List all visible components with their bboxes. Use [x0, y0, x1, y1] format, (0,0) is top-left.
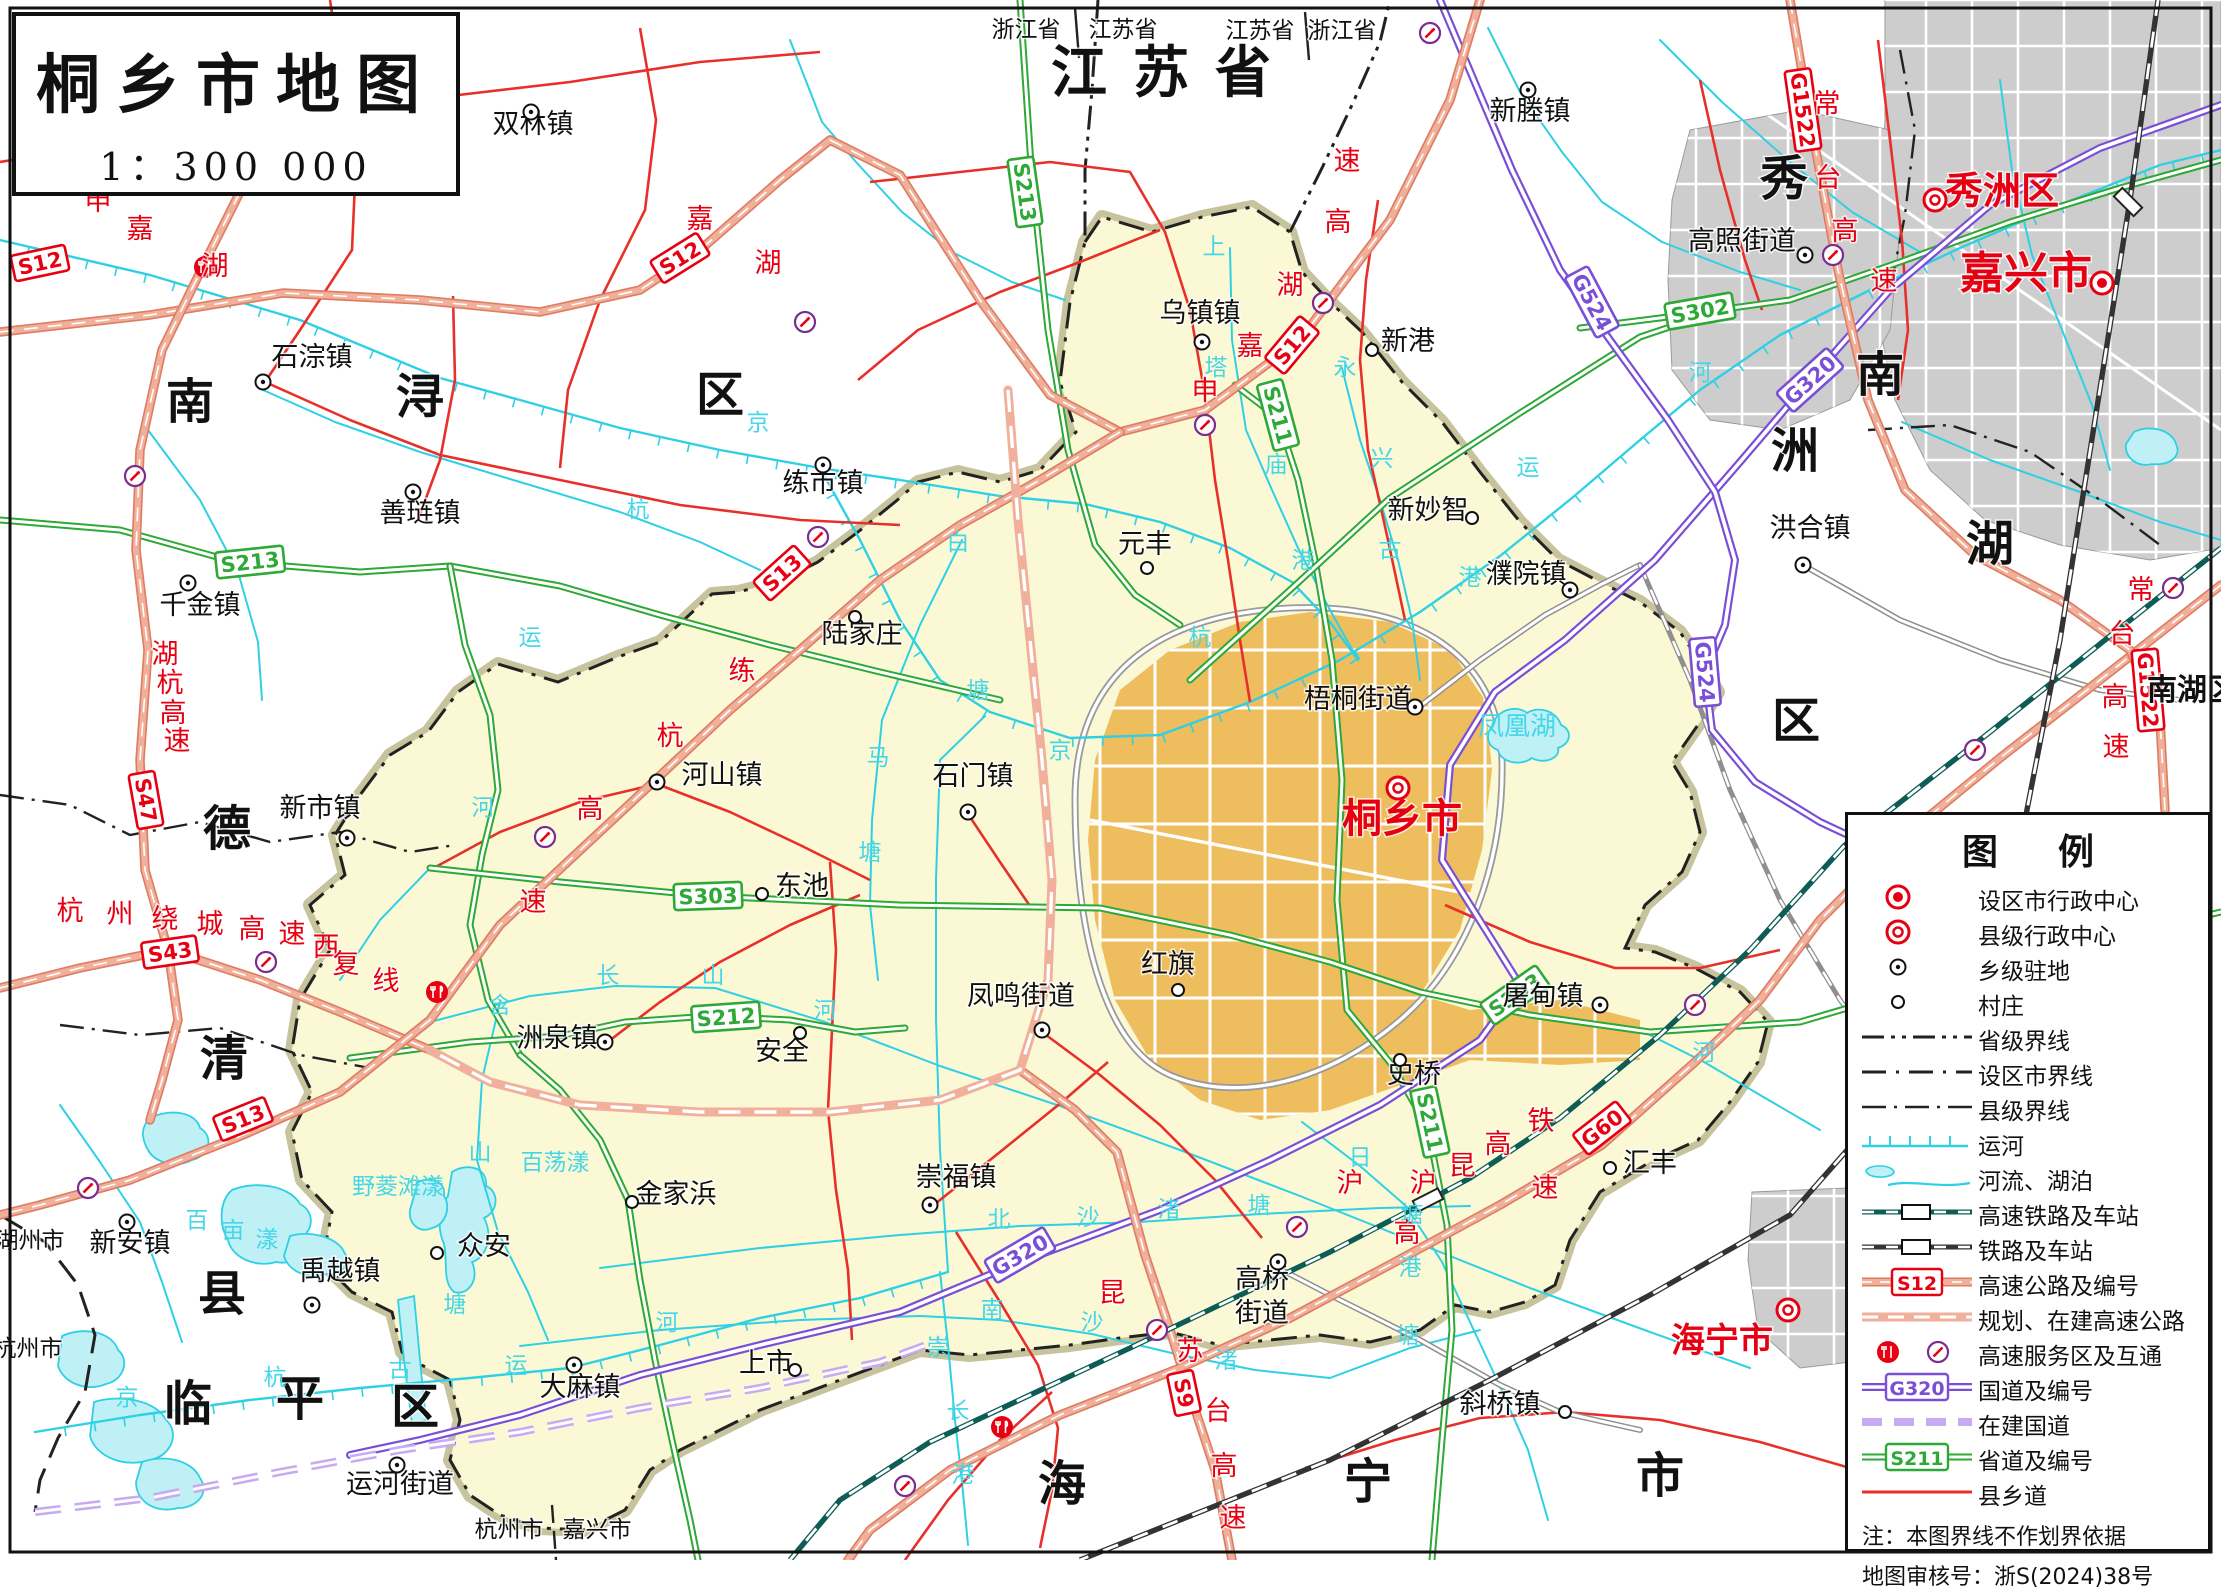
town-label: 洲泉镇 [517, 1023, 598, 1054]
road-label: 速 [1220, 1503, 1247, 1534]
water-label: 河 [814, 998, 837, 1024]
water-label: 白 [947, 530, 970, 556]
township-dot [1798, 248, 1813, 263]
dist-label: 区 [391, 1379, 439, 1435]
legend-label: 规划、在建高速公路 [1978, 1302, 2185, 1336]
water-label: 河 [472, 795, 495, 821]
road-label: 杭 [157, 668, 184, 699]
legend-item-county-road: 县乡道 [1848, 1476, 2208, 1511]
red-label: 秀洲区 [1944, 169, 2059, 213]
legend-item-canal: 运河 [1848, 1126, 2208, 1161]
road-label: 沪 [1410, 1168, 1437, 1199]
road-label: 高 [1485, 1129, 1512, 1160]
interchange-icon [1147, 1320, 1167, 1340]
bound-label: 嘉兴市 [563, 1517, 632, 1543]
legend-symbol-canal [1858, 1126, 1978, 1162]
dist-label: 江苏省 [1051, 40, 1297, 106]
town-label: 运河街道 [346, 1469, 454, 1500]
township-dot [406, 485, 421, 500]
water-label: 百荡漾 [521, 1150, 590, 1176]
township-dot [524, 105, 539, 120]
water-label: 杭 [627, 497, 650, 523]
village-dot [789, 1364, 801, 1376]
water-label: 古 [389, 1357, 412, 1383]
interchange-icon [795, 312, 815, 332]
road-label: 速 [1532, 1173, 1559, 1204]
legend-item-rail: 铁路及车站 [1848, 1231, 2208, 1266]
water-label: 野菱滩漾 [352, 1174, 444, 1200]
water-label: 港 [1292, 548, 1315, 574]
legend-label: 国道及编号 [1978, 1372, 2093, 1406]
road-label: 州 [107, 899, 134, 930]
legend-symbol-township [1858, 951, 1978, 987]
interchange-icon [1313, 293, 1333, 313]
road-label: 速 [164, 726, 191, 757]
dist-label: 区 [696, 367, 744, 423]
town-label: 梧桐街道 [1304, 684, 1412, 715]
water-label: 马 [867, 745, 890, 771]
legend-item-provincial: S211省道及编号 [1848, 1441, 2208, 1476]
township-dot [1521, 83, 1536, 98]
service-area-icon [426, 981, 448, 1003]
town-label: 新塍镇 [1490, 96, 1571, 127]
water-label: 日 [1349, 1145, 1372, 1171]
village-dot [1366, 344, 1378, 356]
legend-symbol-hsr [1858, 1196, 1978, 1232]
svg-text:S303: S303 [678, 883, 738, 909]
county-admin-dot [1387, 777, 1409, 799]
legend-item-township: 乡级驻地 [1848, 951, 2208, 986]
road-label: 沪 [1337, 1168, 1364, 1199]
town-label: 陆家庄 [822, 619, 903, 650]
water-label: 塔 [1205, 355, 1228, 381]
town-label: 汇丰 [1623, 1148, 1677, 1179]
interchange-icon [125, 466, 145, 486]
township-dot [120, 1215, 135, 1230]
water-label: 港 [952, 1462, 975, 1488]
legend-title: 图例 [1908, 823, 2208, 875]
svg-text:G320: G320 [1889, 1378, 1944, 1400]
road-badge-s212: S212 [691, 1002, 761, 1033]
water-label: 河 [1693, 1040, 1716, 1066]
county-admin-dot [1924, 189, 1946, 211]
township-dot [961, 805, 976, 820]
legend-item-national-planned: 在建国道 [1848, 1406, 2208, 1441]
legend-symbol-national: G320 [1858, 1371, 1978, 1407]
road-label: 速 [1334, 146, 1361, 177]
water-label: 漾 [256, 1227, 279, 1253]
water-label: 港 [1399, 1255, 1422, 1281]
legend-label: 高速公路及编号 [1978, 1267, 2139, 1301]
road-label: 线 [373, 966, 400, 997]
legend-note-2: 地图审核号：浙S(2024)38号 [1862, 1559, 2208, 1591]
road-label: 湖 [755, 248, 782, 279]
town-label: 乌镇镇 [1160, 298, 1241, 329]
town-label: 新港 [1381, 326, 1435, 357]
legend-label: 乡级驻地 [1978, 952, 2070, 986]
water-label: 长 [597, 963, 620, 989]
water-label: 亩 [222, 1218, 245, 1244]
interchange-icon [1287, 1217, 1307, 1237]
township-dot [567, 1358, 582, 1373]
water-label: 凤凰湖 [1478, 712, 1556, 742]
water-label: 百 [186, 1208, 209, 1234]
dist-label: 县 [198, 1266, 246, 1322]
water-label: 长 [947, 1398, 970, 1424]
road-label: 高 [577, 794, 604, 825]
red-label: 海宁市 [1671, 1321, 1773, 1361]
road-label: 湖 [202, 251, 229, 282]
water-label: 庙 [1265, 452, 1288, 478]
township-dot [1035, 1023, 1050, 1038]
town-label: 上市 [739, 1348, 793, 1379]
legend-label: 河流、湖泊 [1978, 1162, 2093, 1196]
town-label: 红旗 [1141, 949, 1195, 980]
village-dot [1141, 562, 1153, 574]
legend-symbol-expwy-planned [1858, 1301, 1978, 1337]
legend-item-county-boundary: 县级界线 [1848, 1091, 2208, 1126]
road-label: 苏 [1177, 1336, 1204, 1367]
road-label: 速 [2103, 732, 2130, 763]
water-label: 永 [1334, 355, 1357, 381]
interchange-icon [1195, 415, 1215, 435]
interchange-icon [535, 827, 555, 847]
village-dot [1172, 984, 1184, 996]
road-label: 速 [1871, 266, 1898, 297]
town-label: 安全 [755, 1036, 809, 1067]
village-dot [1394, 1054, 1406, 1066]
water-label: 渚 [1215, 1348, 1238, 1374]
dist-label: 德 [203, 801, 251, 857]
township-dot [340, 831, 355, 846]
interchange-icon [1823, 245, 1843, 265]
water-label: 运 [1517, 455, 1540, 481]
road-label: 湖 [152, 639, 179, 670]
legend-label: 运河 [1978, 1127, 2024, 1161]
road-label: 高 [1325, 207, 1352, 238]
road-badge-s303: S303 [674, 882, 743, 910]
legend: 图例 设区市行政中心县级行政中心乡级驻地村庄省级界线设区市界线县级界线运河河流、… [1845, 812, 2211, 1552]
township-dot [305, 1298, 320, 1313]
water-label: 杭 [1189, 625, 1212, 651]
legend-symbol-river-lake [1858, 1161, 1978, 1197]
road-label: 湖 [1277, 270, 1304, 301]
water-label: 塘 [1397, 1323, 1420, 1349]
legend-label: 铁路及车站 [1978, 1232, 2093, 1266]
road-badge-s213: S213 [215, 546, 285, 579]
legend-symbol-prov-boundary [1858, 1021, 1978, 1057]
road-badge-g524: G524 [1689, 637, 1721, 707]
interchange-icon [2163, 578, 2183, 598]
road-label: 高 [2102, 682, 2129, 713]
water-label: 南 [981, 1297, 1004, 1323]
township-dot [923, 1198, 938, 1213]
town-label: 新安镇 [90, 1228, 171, 1259]
water-label: 塘 [967, 678, 990, 704]
township-dot [1563, 583, 1578, 598]
interchange-icon [1685, 995, 1705, 1015]
water-label: 崇 [927, 1335, 950, 1361]
water-label: 港 [1459, 565, 1482, 591]
dist-label: 湖 [1966, 516, 2014, 572]
water-label: 上 [1203, 234, 1226, 260]
town-label: 河山镇 [682, 760, 763, 791]
dist-label: 南 [1856, 347, 1904, 403]
legend-item-expwy-planned: 规划、在建高速公路 [1848, 1301, 2208, 1336]
legend-label: 县级界线 [1978, 1092, 2070, 1126]
village-dot [794, 1027, 806, 1039]
water-label: 渚 [1158, 1197, 1181, 1223]
town-label: 石门镇 [933, 761, 1014, 792]
legend-item-service-interchange: 高速服务区及互通 [1848, 1336, 2208, 1371]
legend-symbol-county-boundary [1858, 1091, 1978, 1127]
town-label: 屠甸镇 [1503, 981, 1584, 1012]
legend-symbol-county-admin [1858, 916, 1978, 952]
town-label: 金家浜 [636, 1179, 717, 1210]
town-label: 元丰 [1118, 529, 1172, 560]
legend-item-river-lake: 河流、湖泊 [1848, 1161, 2208, 1196]
town-label: 凤鸣街道 [967, 981, 1075, 1012]
county-admin-dot [1777, 1299, 1799, 1321]
water-label: 含 [489, 993, 512, 1019]
town-label: 新妙智 [1388, 495, 1469, 526]
town-label: 石淙镇 [272, 342, 353, 373]
legend-symbol-city-admin [1858, 881, 1978, 917]
town-label: 禹越镇 [300, 1256, 381, 1287]
legend-item-city-admin: 设区市行政中心 [1848, 881, 2208, 916]
road-label: 高 [1211, 1451, 1238, 1482]
village-dot [1559, 1406, 1571, 1418]
water-label: 河 [656, 1310, 679, 1336]
town-label: 众安 [457, 1231, 511, 1262]
interchange-icon [1965, 740, 1985, 760]
town-label: 大麻镇 [540, 1372, 621, 1403]
bound-label: 杭州市 [475, 1517, 544, 1543]
village-dot [431, 1247, 443, 1259]
legend-item-village: 村庄 [1848, 986, 2208, 1021]
town-label: 洪合镇 [1770, 513, 1851, 544]
legend-symbol-rail [1858, 1231, 1978, 1267]
legend-note-1: 注：本图界线不作划界依据 [1862, 1519, 2208, 1551]
legend-item-city-boundary: 设区市界线 [1848, 1056, 2208, 1091]
road-label: 台 [1205, 1396, 1232, 1427]
map-sheet: { "title":{"text":"桐乡市地图","scale":"1：300… [0, 0, 2221, 1560]
town-label: 新市镇 [280, 793, 361, 824]
road-label: 杭 [57, 896, 84, 927]
township-dot [1408, 700, 1423, 715]
legend-symbol-expwy: S12 [1858, 1266, 1978, 1302]
water-label: 塘 [859, 840, 882, 866]
road-label: 昆 [1099, 1278, 1126, 1309]
town-label: 善琏镇 [380, 498, 461, 529]
dist-label: 宁 [1344, 1454, 1392, 1510]
bound-label: 浙江省 [992, 17, 1061, 43]
road-label: 练 [729, 656, 756, 687]
water-label: 北 [988, 1207, 1011, 1233]
road-label: 铁 [1528, 1106, 1555, 1137]
map-scale: 1：300 000 [16, 136, 456, 191]
water-label: 塘 [1248, 1193, 1271, 1219]
legend-symbol-national-planned [1858, 1406, 1978, 1442]
road-label: 高 [160, 698, 187, 729]
road-label: 高 [239, 914, 266, 945]
legend-item-national: G320国道及编号 [1848, 1371, 2208, 1406]
water-label: 沙 [1077, 1205, 1100, 1231]
dist-label: 洲 [1771, 423, 1819, 479]
township-dot [390, 1458, 405, 1473]
water-label: 山 [469, 1140, 492, 1166]
water-label: 沙 [1081, 1310, 1104, 1336]
interchange-icon [1420, 23, 1440, 43]
legend-label: 村庄 [1978, 987, 2024, 1021]
town-label: 街道 [1235, 1298, 1289, 1329]
legend-items: 设区市行政中心县级行政中心乡级驻地村庄省级界线设区市界线县级界线运河河流、湖泊高… [1848, 881, 2208, 1511]
village-dot [849, 611, 861, 623]
road-label: 嘉 [127, 214, 154, 245]
dist-label: 区 [1772, 693, 1820, 749]
dist-label: 浔 [396, 369, 444, 425]
water-label: 京 [1049, 738, 1072, 764]
city-admin-dot [2091, 272, 2113, 294]
service-area-icon [991, 1416, 1013, 1438]
water-label: 古 [1379, 537, 1402, 563]
township-dot [256, 375, 271, 390]
map-title: 桐乡市地图 [16, 34, 456, 126]
road-label: 台 [2109, 619, 2136, 650]
water-label: 塘 [1401, 1202, 1424, 1228]
township-dot [181, 576, 196, 591]
road-label: 绕 [152, 904, 179, 935]
town-label: 濮院镇 [1486, 559, 1567, 590]
legend-item-expwy: S12高速公路及编号 [1848, 1266, 2208, 1301]
interchange-icon [256, 952, 276, 972]
legend-label: 县级行政中心 [1978, 917, 2116, 951]
water-label: 兴 [1371, 446, 1394, 472]
legend-label: 省道及编号 [1978, 1442, 2093, 1476]
township-dot [1593, 998, 1608, 1013]
legend-label: 县乡道 [1978, 1477, 2047, 1511]
road-label: 嘉 [1237, 331, 1264, 362]
red-label: 桐乡市 [1342, 796, 1462, 842]
legend-label: 省级界线 [1978, 1022, 2070, 1056]
village-dot [1466, 512, 1478, 524]
road-label: 常 [2128, 575, 2155, 606]
bound-label: 浙江省 [1308, 18, 1377, 44]
bound-label: 江苏省 [1226, 18, 1295, 44]
water-label: 运 [519, 625, 542, 651]
road-label: 台 [1815, 163, 1842, 194]
township-dot [650, 775, 665, 790]
township-dot [1796, 558, 1811, 573]
legend-item-hsr: 高速铁路及车站 [1848, 1196, 2208, 1231]
legend-symbol-county-road [1858, 1476, 1978, 1512]
interchange-icon [78, 1178, 98, 1198]
dist-label: 南 [166, 374, 214, 430]
legend-label: 在建国道 [1978, 1407, 2070, 1441]
town-label: 高照街道 [1688, 226, 1796, 257]
legend-label: 设区市行政中心 [1978, 882, 2139, 916]
road-label: 城 [197, 909, 224, 940]
legend-item-prov-boundary: 省级界线 [1848, 1021, 2208, 1056]
village-dot [626, 1196, 638, 1208]
legend-symbol-service-interchange [1858, 1336, 1978, 1372]
water-label: 河 [1689, 360, 1712, 386]
road-label: 速 [520, 887, 547, 918]
dist-label: 临 [164, 1376, 212, 1432]
legend-symbol-provincial: S211 [1858, 1441, 1978, 1477]
dist-label: 海 [1038, 1456, 1086, 1512]
svg-text:S212: S212 [696, 1003, 756, 1031]
interchange-icon [808, 527, 828, 547]
legend-label: 高速服务区及互通 [1978, 1337, 2162, 1371]
legend-label: 设区市界线 [1978, 1057, 2093, 1091]
road-label: 高 [1832, 216, 1859, 247]
legend-label: 高速铁路及车站 [1978, 1197, 2139, 1231]
svg-text:S211: S211 [1890, 1448, 1943, 1470]
road-label: 嘉 [687, 204, 714, 235]
town-label: 千金镇 [160, 590, 241, 621]
road-label: 昆 [1449, 1151, 1476, 1182]
town-label: 东池 [775, 871, 829, 902]
legend-item-county-admin: 县级行政中心 [1848, 916, 2208, 951]
dist-label: 清 [200, 1031, 248, 1087]
dist-label: 市 [1636, 1448, 1684, 1504]
svg-text:S12: S12 [1897, 1273, 1937, 1295]
road-label: 杭 [657, 721, 684, 752]
village-dot [756, 888, 768, 900]
village-dot [1604, 1162, 1616, 1174]
red-label: 嘉兴市 [1960, 248, 2092, 299]
township-dot [816, 458, 831, 473]
water-label: 塘 [444, 1292, 467, 1318]
road-label: 速 [279, 919, 306, 950]
township-dot [598, 1035, 613, 1050]
town-label: 斜桥镇 [1460, 1389, 1541, 1420]
township-dot [1271, 1255, 1286, 1270]
road-label: 复 [333, 949, 360, 980]
map-title-box: 桐乡市地图 1：300 000 [12, 12, 460, 196]
interchange-icon [895, 1476, 915, 1496]
road-label: 常 [1814, 89, 1841, 120]
legend-symbol-village [1858, 986, 1978, 1022]
water-label: 运 [505, 1353, 528, 1379]
town-label: 崇福镇 [916, 1162, 997, 1193]
township-dot [1195, 335, 1210, 350]
water-label: 京 [116, 1385, 139, 1411]
water-label: 京 [747, 410, 770, 436]
dist-label: 秀 [1759, 151, 1808, 207]
water-label: 山 [702, 963, 725, 989]
bound-label: 江苏省 [1089, 17, 1158, 43]
legend-symbol-city-boundary [1858, 1056, 1978, 1092]
water-label: 杭 [264, 1365, 287, 1391]
